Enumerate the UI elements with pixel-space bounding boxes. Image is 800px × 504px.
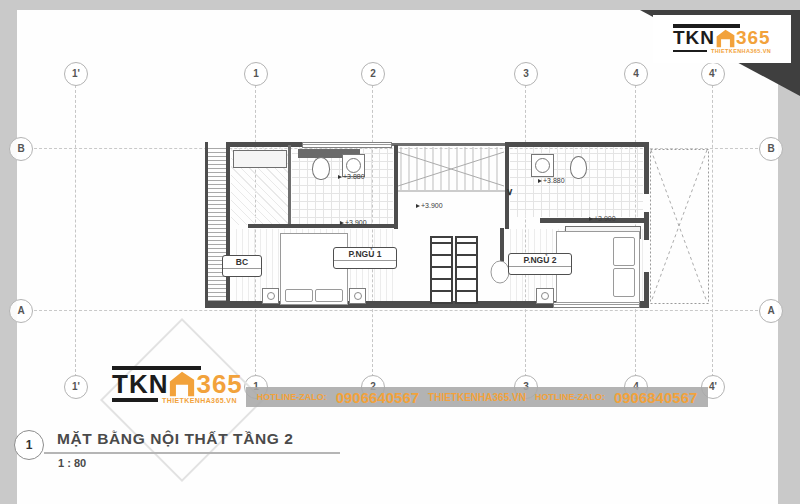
nightstand xyxy=(262,288,279,304)
grid-bubble-top-1p: 1' xyxy=(64,62,88,86)
grid-bubble-right-B: B xyxy=(759,137,783,161)
grid-bubble-left-B: B xyxy=(9,137,33,161)
room-name: BC xyxy=(223,256,261,269)
nightstand xyxy=(536,288,554,304)
logo-sub-bar xyxy=(112,398,158,402)
grid-bubble-right-A: A xyxy=(759,299,783,323)
hotline-phone-1: 0906640567 xyxy=(336,389,419,406)
direction-chevron: ∨ xyxy=(506,186,513,197)
hotline-phone-2: 0906840567 xyxy=(614,389,697,406)
room-label-balcony: BC xyxy=(222,255,262,277)
website-text: THIETKENHA365.VN xyxy=(428,392,526,403)
logo-number-text: 365 xyxy=(196,372,242,396)
house-icon xyxy=(716,29,735,48)
house-icon xyxy=(169,371,195,397)
drawing-number-bubble: 1 xyxy=(14,430,44,460)
window-top xyxy=(302,142,392,148)
screenshot-root: 1' 1 2 3 4 4' 1' 1 2 3 4 4' B A B A xyxy=(0,0,800,504)
elevation-label: +3.900 xyxy=(340,219,367,226)
company-logo: TKN 365 THIETKENHA365.VN xyxy=(673,24,771,54)
company-logo: TKN 365 THIETKENHA365.VN xyxy=(112,366,243,404)
pillow xyxy=(315,289,343,302)
sink-icon xyxy=(531,154,554,177)
drawing-scale: 1 : 80 xyxy=(58,457,86,469)
toilet-icon xyxy=(570,156,587,179)
hotline-label: HOTLINE-ZALO: xyxy=(257,392,327,402)
room-label-bedroom1: P.NGỦ 1 xyxy=(333,247,397,269)
logo-website-text: THIETKENHA365.VN xyxy=(711,48,771,54)
logo-website-text: THIETKENHA365.VN xyxy=(162,397,237,404)
grid-bubble-left-A: A xyxy=(9,299,33,323)
grid-bubble-top-3: 3 xyxy=(514,62,538,86)
logo-brand-text: TKN xyxy=(112,372,168,396)
logo-number-text: 365 xyxy=(736,29,771,47)
wardrobe xyxy=(233,150,287,168)
pillow xyxy=(613,237,635,266)
room-name: P.NGỦ 1 xyxy=(334,248,396,261)
hotline-bar: HOTLINE-ZALO: 0906640567 THIETKENHA365.V… xyxy=(246,387,708,407)
room-label-bedroom2: P.NGỦ 2 xyxy=(508,253,572,275)
pillow xyxy=(285,289,313,302)
logo-brand-text: TKN xyxy=(673,29,715,47)
title-underline xyxy=(44,452,340,454)
grid-line-1p xyxy=(75,85,76,377)
grid-bubble-top-2: 2 xyxy=(361,62,385,86)
toilet-icon xyxy=(312,157,330,180)
logo-sub-bar xyxy=(673,50,707,53)
hotline-label: HOTLINE-ZALO: xyxy=(535,392,605,402)
elevation-label: +3.880 xyxy=(538,177,565,184)
stair-flight xyxy=(455,236,478,304)
grid-bubble-top-4: 4 xyxy=(624,62,648,86)
pillow xyxy=(613,268,635,297)
grid-bubble-top-1: 1 xyxy=(244,62,268,86)
drawing-title: MẶT BẰNG NỘI THẤT TẦNG 2 xyxy=(57,430,294,448)
elevation-label: +3.900 xyxy=(416,202,443,209)
elevation-label: +3.880 xyxy=(338,173,365,180)
elevation-label: +3.900 xyxy=(589,215,616,222)
grid-bubble-bottom-1p: 1' xyxy=(64,375,88,399)
room-name: P.NGỦ 2 xyxy=(509,254,571,267)
stair-flight xyxy=(430,236,453,304)
nightstand xyxy=(349,288,366,304)
company-logo-card: TKN 365 THIETKENHA365.VN xyxy=(653,15,791,63)
grid-bubble-top-4p: 4' xyxy=(701,62,725,86)
